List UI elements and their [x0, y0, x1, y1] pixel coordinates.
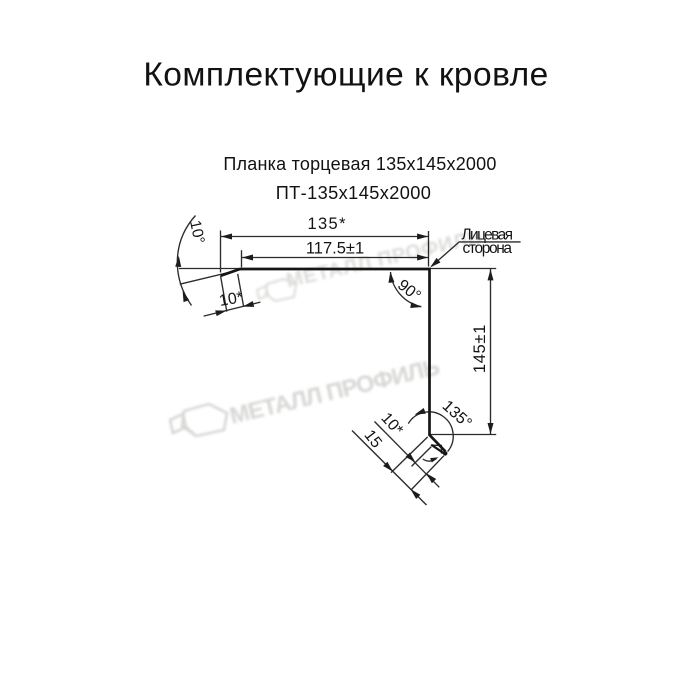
- svg-text:135*: 135*: [308, 215, 347, 233]
- svg-text:Комплектующие к кровле: Комплектующие к кровле: [143, 57, 548, 94]
- svg-text:117.5±1: 117.5±1: [306, 239, 364, 257]
- svg-text:ПТ-135х145х2000: ПТ-135х145х2000: [276, 183, 432, 203]
- svg-text:145±1: 145±1: [471, 325, 489, 374]
- svg-text:сторона: сторона: [463, 240, 513, 257]
- svg-text:Планка торцевая 135х145х2000: Планка торцевая 135х145х2000: [223, 154, 496, 174]
